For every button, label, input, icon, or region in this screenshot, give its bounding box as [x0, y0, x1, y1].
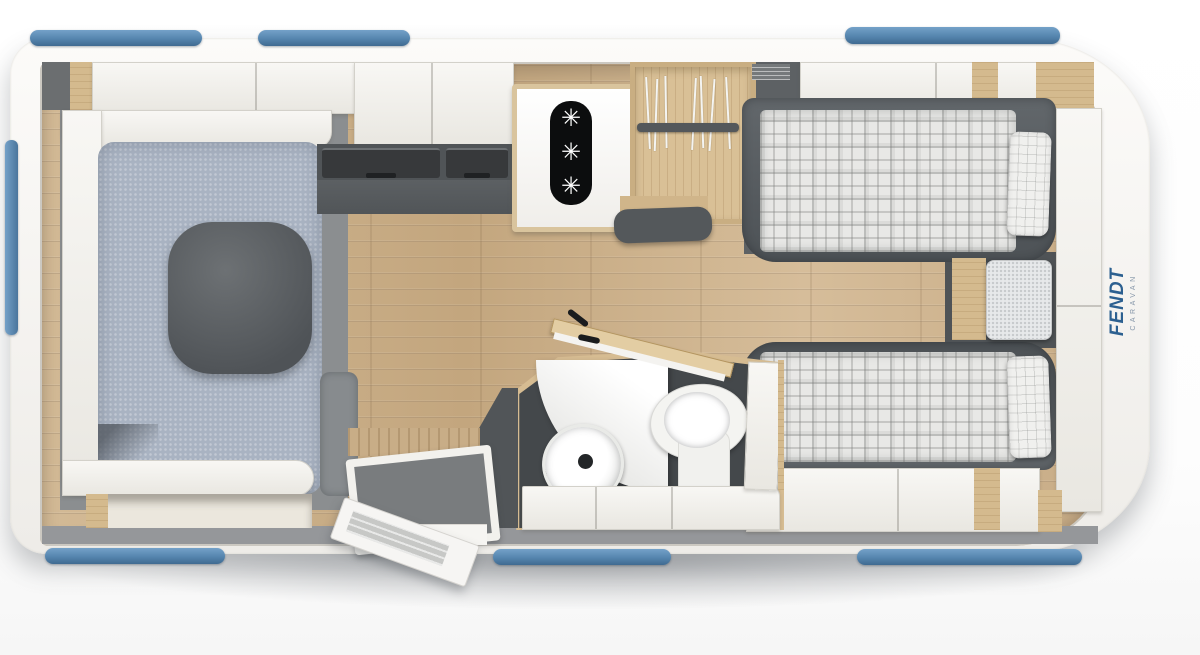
fridge-vent	[752, 64, 790, 80]
kitchen-recess-left	[322, 148, 440, 178]
lounge-seat-left	[62, 110, 102, 494]
locker-seam	[897, 469, 899, 531]
lounge-overhead-lockers	[92, 62, 356, 114]
hob-burner-icon: ✳	[550, 136, 592, 170]
locker-seam	[431, 63, 433, 145]
hanger-icon	[700, 76, 705, 148]
logo-sub: CARAVAN	[1130, 268, 1137, 336]
bed-top-duvet	[760, 110, 1016, 252]
hanger-icon	[691, 78, 697, 150]
between-beds-wood	[952, 258, 986, 340]
front-wardrobe	[1056, 108, 1102, 512]
bed-bottom-duvet	[760, 352, 1016, 462]
hob-3-burner-icon: ✳ ✳ ✳	[550, 101, 592, 205]
hanger-icon	[654, 79, 659, 151]
hob-burner-icon: ✳	[550, 102, 592, 136]
bathroom-bench	[522, 486, 780, 530]
wardrobe-stool	[613, 206, 712, 243]
washbasin-drain	[578, 454, 593, 469]
toilet-seat	[664, 392, 730, 448]
dinette-table	[168, 222, 312, 374]
clothes-rail	[637, 123, 739, 132]
locker-wood-divider-bottom	[974, 468, 1000, 530]
under-seat-storage	[86, 494, 312, 528]
corner-wood-top-left	[70, 62, 92, 110]
drawer-handle	[464, 173, 490, 178]
nightstand	[986, 260, 1052, 340]
cabinet-seam	[1057, 305, 1101, 307]
brand-logo-text: FENDT CARAVAN	[1107, 268, 1137, 336]
bench-seam	[671, 487, 673, 529]
brand-logo: FENDT CARAVAN	[1104, 246, 1140, 358]
caravan-floorplan-canvas: ✳ ✳ ✳	[0, 0, 1200, 655]
kitchen-unit	[317, 144, 513, 214]
hanger-icon	[645, 77, 651, 149]
locker-wood-end-bottom	[1038, 490, 1062, 532]
drawer-handle	[366, 173, 396, 178]
bathroom-wall-wood-edge	[778, 360, 784, 490]
bed-bottom-pillow	[1006, 355, 1052, 458]
kitchen-overhead-lockers	[354, 62, 514, 146]
hanger-icon	[725, 77, 731, 149]
window-rear	[5, 140, 18, 335]
bed-top-pillow	[1006, 131, 1052, 236]
window-bottom-mid	[493, 549, 671, 565]
kitchen-recess-right	[446, 148, 508, 178]
window-bottom-left	[45, 548, 225, 564]
kitchen-unit-front	[317, 180, 513, 214]
bench-seam	[595, 487, 597, 529]
hanger-icon	[664, 76, 667, 148]
lounge-seat-bottom	[62, 460, 314, 496]
window-top-right	[845, 27, 1060, 44]
window-top-mid	[258, 30, 410, 46]
corner-floor-top-left	[42, 62, 72, 110]
hob-burner-icon: ✳	[550, 170, 592, 204]
under-seat-wood-divider	[86, 494, 108, 528]
locker-seam	[255, 63, 257, 113]
window-top-left	[30, 30, 202, 46]
hanger-icon	[708, 79, 715, 151]
bathroom-right-wall	[744, 361, 782, 490]
window-bottom-right	[857, 549, 1082, 565]
logo-main: FENDT	[1107, 268, 1129, 336]
